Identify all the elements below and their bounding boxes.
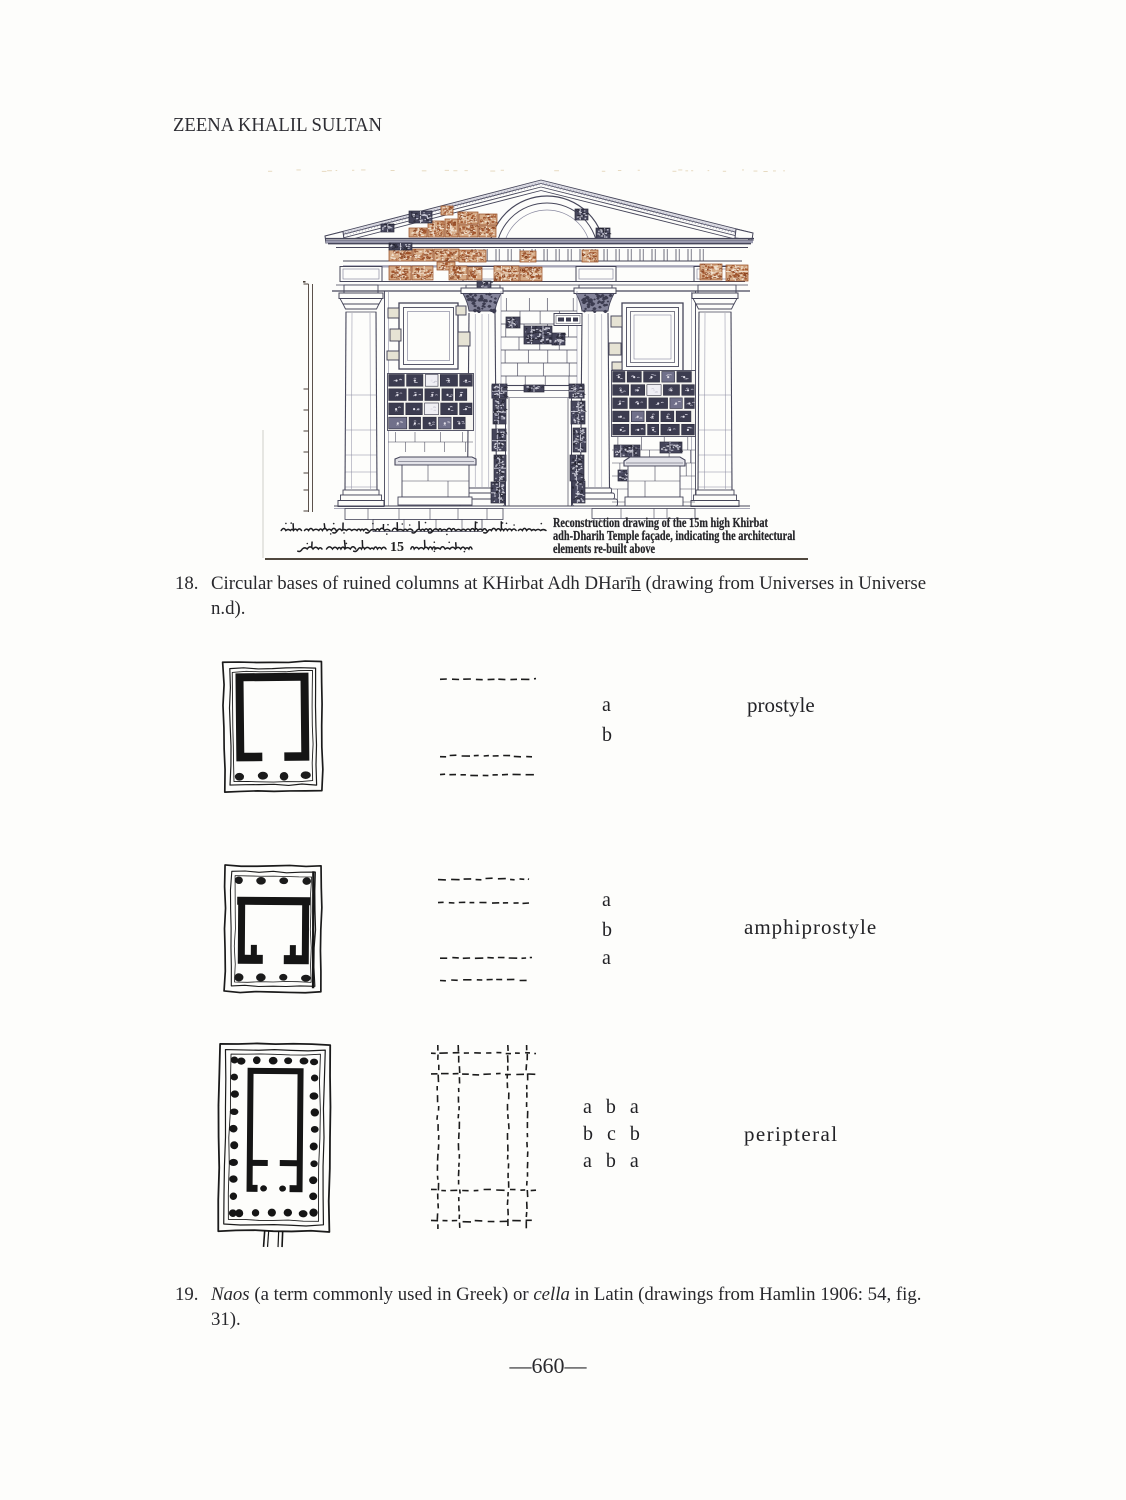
svg-text:15: 15: [390, 540, 404, 555]
